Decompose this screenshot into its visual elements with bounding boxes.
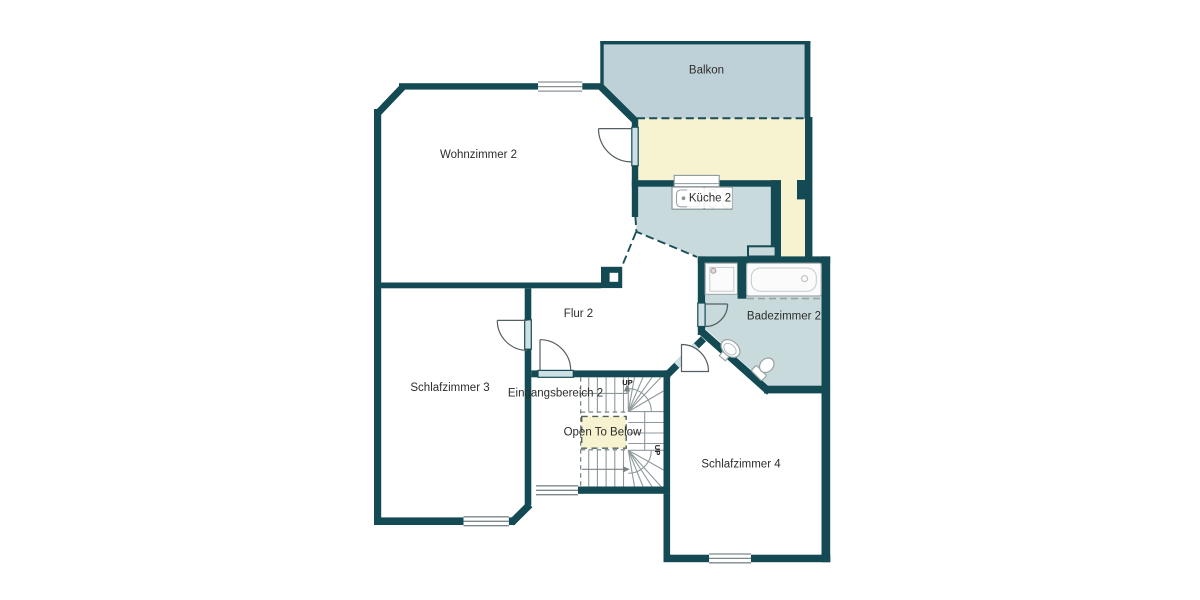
svg-text:Badezimmer 2: Badezimmer 2 xyxy=(747,311,821,323)
svg-text:UP: UP xyxy=(653,445,662,455)
svg-text:Balkon: Balkon xyxy=(689,65,724,77)
svg-text:UP: UP xyxy=(622,378,632,387)
svg-text:Open To Below: Open To Below xyxy=(564,427,642,439)
svg-text:Flur 2: Flur 2 xyxy=(564,308,593,320)
svg-text:Schlafzimmer 3: Schlafzimmer 3 xyxy=(410,382,489,394)
svg-text:Schlafzimmer 4: Schlafzimmer 4 xyxy=(701,459,781,471)
svg-text:Küche 2: Küche 2 xyxy=(689,193,731,205)
svg-text:Wohnzimmer 2: Wohnzimmer 2 xyxy=(440,149,517,161)
svg-text:Eingangsbereich 2: Eingangsbereich 2 xyxy=(508,388,603,400)
